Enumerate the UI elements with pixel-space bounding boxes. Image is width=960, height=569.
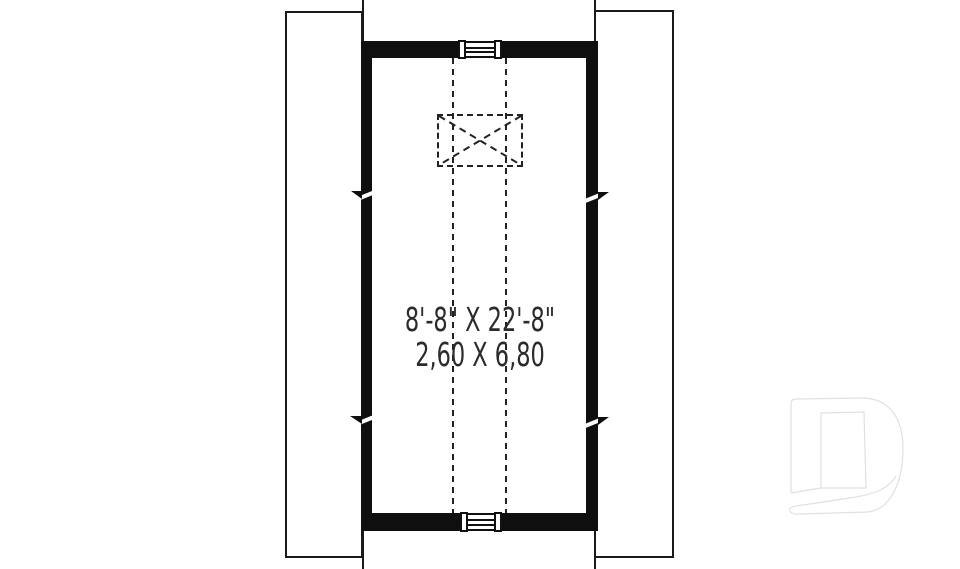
roof-band-right (594, 10, 674, 558)
attic-access-symbol (437, 114, 523, 167)
attic-access-x-icon (439, 116, 521, 165)
vent-end-cap (460, 512, 468, 532)
vent-end-cap (458, 40, 466, 59)
vent-end-cap (494, 40, 502, 59)
roof-band-left (285, 11, 363, 558)
floor-plan-screenshot: { "plan": { "room_dimensions_imperial": … (0, 0, 960, 569)
dimension-metric: 2,60 X 6,80 (378, 337, 582, 372)
vent-end-cap (494, 512, 502, 532)
dimension-imperial: 8'-8" X 22'-8" (378, 302, 582, 337)
drummond-logo-icon (788, 396, 904, 518)
gable-vent-icon-top (458, 40, 502, 59)
vent-louvers (466, 41, 494, 58)
vent-louvers (468, 513, 494, 531)
gable-vent-icon-bottom (460, 512, 502, 532)
room-dimensions: 8'-8" X 22'-8" 2,60 X 6,80 (378, 302, 582, 372)
